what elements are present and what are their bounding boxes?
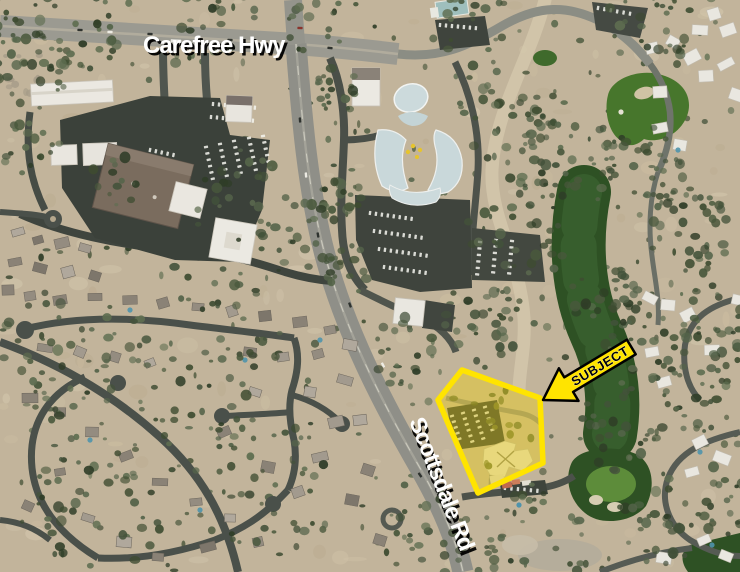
- parked-car: [216, 115, 219, 119]
- tree: [271, 433, 276, 437]
- tree: [55, 79, 63, 85]
- tree: [526, 129, 537, 138]
- car: [297, 27, 302, 30]
- tree: [727, 510, 734, 517]
- tree: [526, 203, 531, 208]
- tree: [166, 441, 172, 446]
- tree: [306, 218, 311, 223]
- tree: [407, 533, 413, 537]
- pool: [197, 507, 202, 512]
- tree: [57, 48, 63, 53]
- tree: [33, 390, 37, 394]
- tree: [665, 485, 673, 492]
- tree: [258, 232, 268, 240]
- tree: [689, 523, 694, 528]
- tree: [16, 99, 25, 108]
- tree: [2, 73, 13, 81]
- tree: [532, 498, 536, 502]
- tree: [208, 4, 217, 13]
- tree: [690, 233, 700, 240]
- tree: [42, 300, 50, 307]
- tree: [638, 441, 644, 446]
- tree: [470, 310, 481, 320]
- scrub-blob: [360, 524, 364, 531]
- tree: [649, 337, 659, 345]
- tree: [260, 525, 268, 532]
- tree: [184, 274, 191, 281]
- tree: [595, 434, 604, 442]
- tree: [660, 4, 666, 8]
- tree: [250, 363, 258, 370]
- tree: [663, 49, 668, 55]
- tree: [619, 295, 629, 303]
- tree: [649, 246, 656, 251]
- tree: [211, 196, 219, 205]
- tree: [507, 203, 517, 211]
- scrub-blob: [231, 3, 235, 11]
- tree: [595, 197, 600, 201]
- scrub-blob: [512, 510, 516, 517]
- tree: [532, 218, 542, 228]
- tree: [239, 381, 245, 387]
- tree: [107, 55, 113, 61]
- tree: [224, 180, 232, 188]
- tree: [391, 327, 398, 334]
- scrub-blob: [324, 106, 328, 110]
- scrub-blob: [194, 372, 197, 378]
- tree: [612, 34, 616, 39]
- tree: [304, 263, 312, 269]
- scrub-blob: [160, 344, 169, 351]
- tree: [674, 523, 685, 534]
- tree: [621, 138, 632, 146]
- desert-patch: [507, 1, 523, 10]
- tree: [20, 520, 24, 524]
- tree: [282, 194, 290, 201]
- tree: [407, 327, 413, 332]
- tree: [69, 507, 77, 514]
- tree: [82, 396, 86, 400]
- tree: [251, 15, 258, 21]
- scrub-blob: [410, 403, 415, 407]
- tree: [252, 537, 260, 546]
- tree: [230, 433, 239, 440]
- scrub-blob: [482, 365, 488, 370]
- retail-building: [51, 145, 78, 166]
- tree: [103, 479, 113, 487]
- tree: [325, 26, 332, 32]
- tree: [202, 177, 208, 183]
- tree: [468, 61, 479, 71]
- house-roof: [88, 293, 102, 300]
- tree: [609, 156, 615, 161]
- tree: [463, 297, 473, 305]
- tree: [503, 286, 511, 294]
- scrub-blob: [165, 563, 169, 567]
- tree: [470, 2, 479, 9]
- house-roof-white: [653, 86, 668, 98]
- tree: [3, 10, 9, 16]
- tree: [414, 352, 421, 359]
- tree: [216, 21, 225, 27]
- tree: [708, 425, 714, 431]
- tree: [4, 318, 15, 328]
- scrub-blob: [364, 128, 370, 133]
- tree: [701, 498, 711, 506]
- cul-de-sac: [16, 321, 34, 339]
- tree: [710, 480, 718, 487]
- tree: [89, 327, 95, 332]
- tree: [709, 215, 717, 223]
- roof-wing: [430, 7, 439, 18]
- tree: [601, 141, 612, 150]
- tree: [354, 183, 362, 191]
- tree: [523, 142, 528, 146]
- tree: [161, 432, 168, 439]
- tree: [672, 371, 678, 376]
- parked-car: [474, 26, 477, 30]
- tree: [657, 423, 668, 432]
- scrub-blob: [705, 54, 710, 61]
- tree: [679, 202, 688, 209]
- tree: [378, 349, 385, 355]
- scrub-blob: [636, 259, 639, 264]
- tree: [491, 320, 501, 328]
- tree: [348, 192, 354, 197]
- scrub-blob: [348, 168, 355, 172]
- tree: [680, 322, 687, 328]
- parked-car: [475, 273, 479, 276]
- parked-car: [492, 258, 496, 261]
- tree: [325, 93, 331, 99]
- tree: [15, 338, 22, 343]
- tree: [576, 560, 584, 566]
- tree: [29, 377, 37, 386]
- tree: [472, 115, 478, 120]
- tree: [453, 328, 460, 335]
- tree: [302, 467, 308, 472]
- tree: [650, 375, 657, 381]
- tree: [10, 91, 15, 96]
- tree: [93, 19, 102, 28]
- tree: [511, 264, 516, 268]
- tree: [28, 163, 33, 168]
- tree: [632, 286, 642, 293]
- golf-green-small: [533, 50, 557, 66]
- tree: [56, 515, 67, 526]
- tree: [538, 169, 546, 176]
- tree: [271, 352, 280, 361]
- tree: [258, 219, 264, 224]
- scrub-blob: [265, 275, 268, 281]
- tree: [612, 139, 616, 144]
- tree: [54, 477, 62, 484]
- tree: [418, 557, 426, 563]
- tree: [300, 199, 308, 208]
- tree: [500, 261, 510, 270]
- tree: [604, 157, 608, 161]
- tree: [692, 288, 701, 294]
- tree: [649, 175, 656, 180]
- tree: [385, 380, 394, 387]
- umbrella: [418, 148, 422, 152]
- tree: [622, 388, 629, 395]
- tree: [664, 514, 669, 519]
- house-roof: [258, 310, 272, 322]
- tree: [47, 529, 56, 536]
- parked-car: [509, 253, 513, 256]
- house-roof: [85, 427, 98, 437]
- scrub-blob: [595, 74, 600, 78]
- resort-parking-lot: [355, 195, 472, 292]
- tree: [491, 101, 500, 108]
- tree: [541, 491, 547, 496]
- tree: [129, 356, 136, 363]
- tree: [540, 159, 551, 170]
- tree: [310, 472, 319, 480]
- tree: [73, 434, 79, 440]
- tree: [494, 240, 503, 249]
- parked-car: [463, 25, 466, 29]
- scrub-blob: [728, 107, 735, 114]
- tree: [266, 222, 271, 227]
- tree: [703, 523, 713, 534]
- tree: [663, 388, 670, 394]
- tree: [635, 12, 646, 21]
- scrub-blob: [187, 412, 195, 419]
- tree: [724, 415, 729, 420]
- tree: [617, 270, 626, 279]
- tree: [249, 418, 255, 423]
- desert-patch: [396, 332, 410, 344]
- tree: [651, 486, 661, 497]
- tree: [35, 15, 46, 26]
- tree: [186, 364, 193, 370]
- scrub-blob: [539, 294, 545, 301]
- tree: [547, 251, 556, 258]
- tree: [374, 365, 384, 373]
- tree: [254, 174, 262, 180]
- tree: [508, 341, 518, 352]
- tree: [277, 331, 283, 335]
- tree: [620, 319, 627, 326]
- tree: [192, 467, 199, 473]
- car: [305, 172, 308, 177]
- tree: [673, 60, 681, 68]
- tree: [639, 39, 644, 43]
- desert-patch: [307, 328, 322, 334]
- tree: [480, 207, 491, 218]
- scrub-blob: [325, 136, 331, 143]
- tree: [511, 247, 519, 253]
- tree: [707, 195, 713, 200]
- tree: [453, 7, 459, 11]
- scrub-blob: [390, 514, 394, 517]
- tree: [580, 278, 585, 281]
- tree: [356, 289, 361, 293]
- tree: [497, 350, 506, 358]
- tree: [148, 490, 155, 496]
- tree: [598, 419, 607, 428]
- tree: [552, 183, 558, 188]
- scrub-blob: [607, 556, 611, 561]
- tree: [539, 499, 547, 506]
- tree: [88, 164, 98, 174]
- tree: [48, 150, 53, 155]
- tree: [326, 77, 333, 85]
- tree: [605, 3, 615, 13]
- tree: [49, 63, 54, 68]
- tree: [341, 95, 351, 103]
- desert-patch: [665, 217, 677, 232]
- tree: [578, 415, 587, 422]
- tree: [107, 192, 111, 197]
- tree: [402, 509, 407, 514]
- house-roof-white: [698, 70, 713, 82]
- tree: [215, 427, 223, 433]
- tree: [599, 288, 609, 297]
- scrub-blob: [222, 489, 226, 495]
- desert-patch: [529, 64, 537, 77]
- parked-car: [451, 24, 454, 28]
- tree: [344, 202, 355, 211]
- tree: [348, 85, 358, 96]
- tree: [455, 557, 462, 562]
- tree: [76, 460, 81, 464]
- tree: [14, 119, 25, 130]
- tree: [234, 171, 241, 178]
- tree: [484, 82, 491, 89]
- scrub-blob: [425, 398, 433, 406]
- tree: [722, 362, 729, 369]
- tree: [216, 469, 222, 475]
- car: [299, 117, 302, 122]
- tree: [218, 355, 227, 363]
- scrub-blob: [86, 360, 91, 363]
- tree: [233, 416, 240, 423]
- tree: [216, 444, 222, 449]
- tree: [325, 34, 331, 40]
- parked-car: [536, 489, 539, 493]
- tree: [375, 337, 380, 342]
- tree: [95, 46, 103, 53]
- tree: [396, 513, 405, 522]
- scrub-blob: [505, 159, 510, 165]
- tree: [119, 178, 125, 184]
- desert-patch: [2, 393, 10, 403]
- tree: [162, 368, 167, 372]
- tree: [663, 561, 668, 567]
- tree: [139, 407, 145, 412]
- tree: [361, 274, 372, 283]
- parked-car: [530, 488, 533, 492]
- scrub-blob: [492, 153, 497, 161]
- tree: [289, 13, 297, 19]
- tree: [237, 540, 241, 544]
- tree: [663, 136, 669, 141]
- tree: [699, 203, 706, 210]
- house-roof: [190, 498, 203, 507]
- tree: [185, 512, 189, 515]
- house-roof-white: [660, 299, 675, 311]
- tree: [118, 530, 127, 540]
- tree: [107, 384, 116, 393]
- tree: [335, 1, 341, 7]
- tree: [614, 287, 618, 292]
- desert-patch: [261, 395, 270, 409]
- tree: [546, 227, 554, 233]
- desert-patch: [233, 67, 239, 82]
- tree: [216, 335, 225, 342]
- umbrella: [415, 155, 419, 159]
- tree: [489, 205, 498, 212]
- house-roof: [24, 291, 36, 302]
- scrub-blob: [334, 121, 338, 126]
- scrub-blob: [680, 292, 683, 296]
- tree: [75, 488, 84, 495]
- tree: [443, 45, 453, 52]
- tree: [60, 506, 68, 512]
- tree: [648, 142, 653, 147]
- tree: [584, 401, 591, 406]
- tree: [504, 508, 510, 512]
- tree: [474, 332, 479, 336]
- tree: [493, 68, 501, 75]
- tree: [209, 360, 213, 363]
- scrub-blob: [522, 71, 530, 75]
- tree: [637, 23, 646, 29]
- tree: [596, 126, 604, 134]
- tree: [103, 334, 113, 342]
- tree: [7, 49, 16, 59]
- tree: [683, 268, 688, 273]
- tree: [290, 240, 296, 245]
- tree: [320, 87, 324, 91]
- scrub-blob: [588, 136, 591, 141]
- tree: [699, 268, 708, 277]
- desert-patch: [324, 173, 335, 178]
- tree: [44, 479, 52, 485]
- tree: [326, 101, 331, 105]
- tree: [353, 2, 358, 6]
- tree: [114, 450, 121, 456]
- tree: [107, 463, 113, 468]
- tree: [41, 36, 46, 40]
- tree: [227, 462, 235, 471]
- scrub-blob: [305, 377, 311, 384]
- tree: [209, 301, 216, 307]
- tree: [616, 205, 620, 210]
- tree: [59, 362, 66, 370]
- desert-patch: [423, 139, 429, 145]
- tree: [497, 535, 505, 542]
- scrub-blob: [57, 250, 63, 254]
- tree: [722, 381, 731, 390]
- tree: [557, 148, 565, 155]
- tree: [258, 171, 262, 174]
- tree: [645, 433, 650, 437]
- house-roof-white: [692, 25, 709, 36]
- tree: [641, 517, 651, 528]
- tree: [492, 129, 499, 136]
- scrub-blob: [713, 20, 718, 25]
- tree: [321, 74, 326, 78]
- tree: [700, 400, 710, 407]
- cul-de-sac-island: [50, 216, 56, 222]
- tree: [27, 59, 37, 70]
- tree: [671, 344, 678, 350]
- tree: [533, 95, 540, 100]
